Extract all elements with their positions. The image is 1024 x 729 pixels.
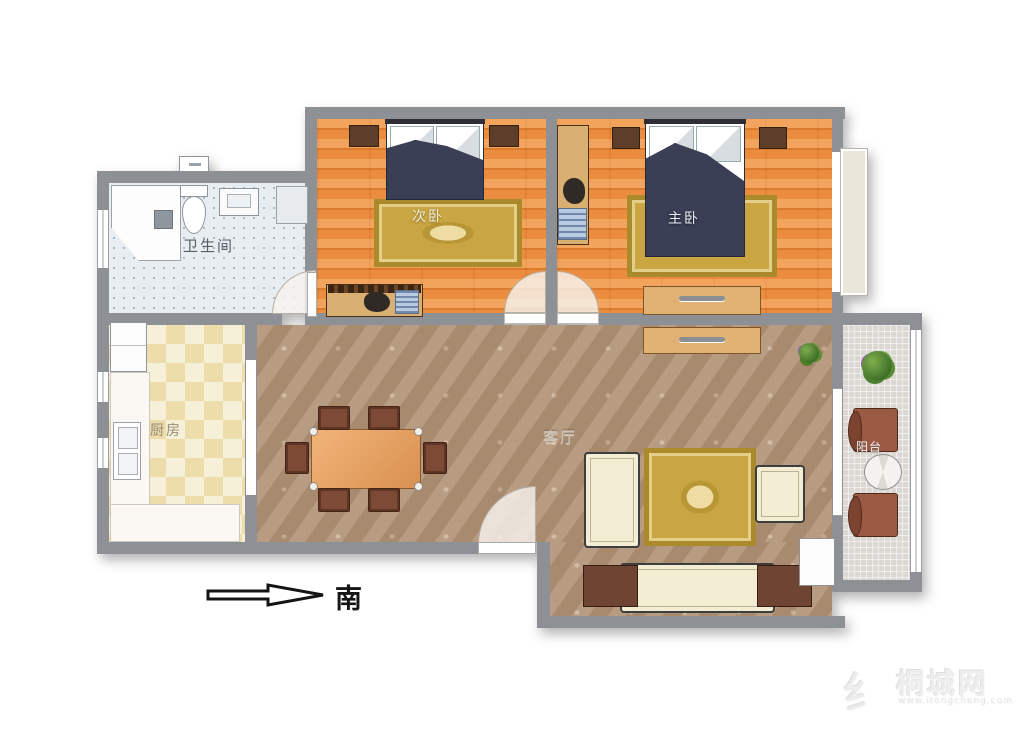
sink-basin xyxy=(118,427,138,449)
bathroom-floor-drain xyxy=(154,210,173,229)
master-bedroom-door xyxy=(557,313,599,324)
wall-balcony-south xyxy=(832,580,922,592)
nightstand xyxy=(759,127,787,149)
two-seat-sofa xyxy=(584,452,640,548)
living-room-label: 客厅 xyxy=(543,426,577,447)
wall-south-left xyxy=(97,542,478,554)
balcony-door xyxy=(833,388,842,516)
dining-chair xyxy=(368,488,400,512)
table-corner xyxy=(414,482,423,491)
potted-plant-icon xyxy=(862,351,892,381)
desk-chair xyxy=(563,178,585,204)
entrance-door xyxy=(478,542,536,554)
dining-chair xyxy=(318,488,350,512)
second-bedroom-door xyxy=(504,313,546,324)
table-corner xyxy=(309,427,318,436)
kitchen-window-lower xyxy=(97,438,109,468)
dining-chair xyxy=(423,442,447,474)
toilet-cistern-box xyxy=(179,156,209,172)
dining-chair xyxy=(318,406,350,430)
master-bedroom-label: 主卧 xyxy=(668,208,700,228)
nightstand xyxy=(349,125,379,147)
headboard xyxy=(385,119,485,124)
tv-cabinet xyxy=(799,538,835,586)
balcony-label: 阳台 xyxy=(856,438,882,455)
dining-chair xyxy=(285,442,309,474)
nightstand xyxy=(489,125,519,147)
kitchen-sink xyxy=(113,422,141,480)
master-bedroom-dresser xyxy=(643,286,761,315)
balcony-lounge-chair xyxy=(853,493,898,537)
apartment-floor-plan: 卫生间 次卧 主卧 厨房 客厅 阳台 xyxy=(0,0,1024,729)
second-bedroom-label: 次卧 xyxy=(412,206,444,226)
potted-plant-icon xyxy=(799,343,819,363)
balcony-window xyxy=(910,330,922,572)
kitchen-label: 厨房 xyxy=(150,420,182,440)
watermark-logo-icon: 纟 xyxy=(838,653,890,723)
desk-chair xyxy=(364,292,390,312)
wall-south-right xyxy=(537,616,845,628)
kitchen-doorway xyxy=(246,360,256,495)
desk-computer xyxy=(395,290,419,314)
master-bedroom-bay-window xyxy=(841,149,867,295)
bathroom-door xyxy=(307,272,317,317)
second-bedroom-bed xyxy=(386,121,484,200)
armchair xyxy=(755,465,805,523)
table-corner xyxy=(309,482,318,491)
wall-north-bedrooms xyxy=(305,107,845,119)
sink-basin xyxy=(118,453,138,475)
refrigerator xyxy=(110,322,147,372)
bathroom-sink xyxy=(219,188,259,216)
side-table xyxy=(583,565,638,607)
balcony-round-table xyxy=(864,454,902,490)
watermark-site-url: www.itongcheng.com xyxy=(898,696,1013,706)
compass: 南 xyxy=(205,575,385,617)
master-bedroom-bed xyxy=(645,121,745,257)
second-bedroom-rug xyxy=(374,199,522,267)
desk-computer xyxy=(558,208,587,240)
washing-machine xyxy=(276,186,308,224)
kitchen-window-upper xyxy=(97,372,109,402)
three-seat-sofa xyxy=(620,563,775,613)
south-arrow-icon xyxy=(205,581,330,609)
bathroom-window xyxy=(97,210,109,268)
living-room-rug xyxy=(644,448,756,546)
wall-north-bathroom xyxy=(97,171,313,183)
bathroom-label: 卫生间 xyxy=(183,235,234,256)
watermark: 纟 桐城网 www.itongcheng.com xyxy=(840,650,1020,722)
dining-chair xyxy=(368,406,400,430)
dining-table xyxy=(311,429,421,489)
kitchen-counter-south xyxy=(110,504,240,542)
compass-south-label: 南 xyxy=(335,577,362,616)
floor-plan-image: 卫生间 次卧 主卧 厨房 客厅 阳台 南 纟 桐城网 www.itongchen… xyxy=(0,0,1024,729)
headboard xyxy=(644,119,746,124)
table-corner xyxy=(414,427,423,436)
wall-between-bedrooms xyxy=(546,107,557,325)
hallway-sideboard xyxy=(643,327,761,354)
nightstand xyxy=(612,127,640,149)
